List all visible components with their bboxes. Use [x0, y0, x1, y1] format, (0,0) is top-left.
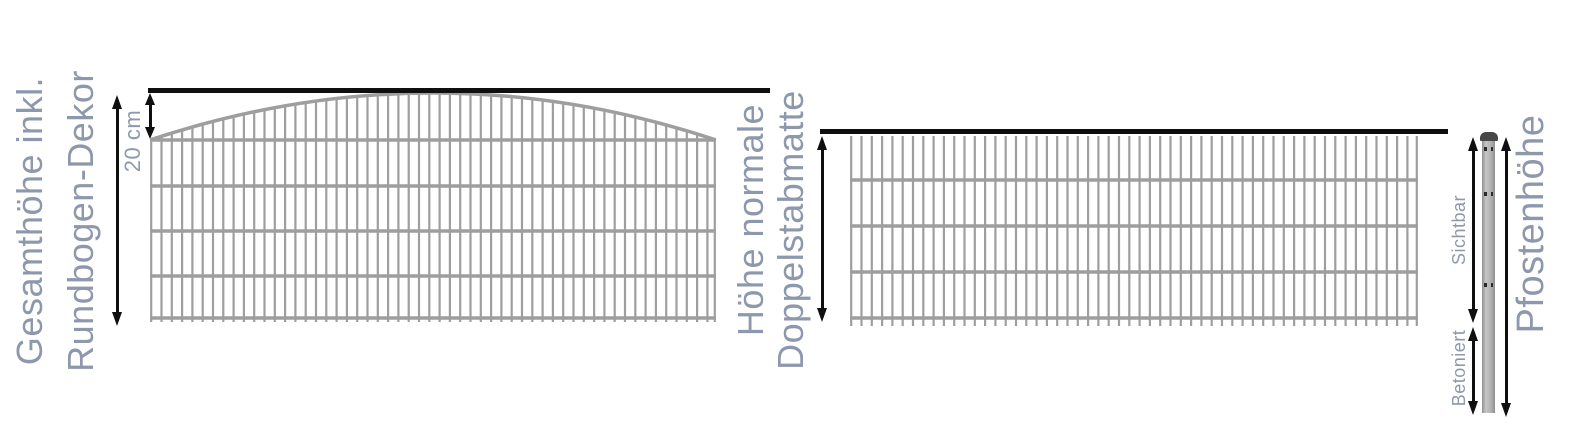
post-clip — [1484, 147, 1493, 151]
post-height-label: Pfostenhöhe — [1512, 115, 1550, 334]
total-height-label-line2: Rundbogen-Dekor — [63, 70, 99, 372]
clip-dot — [1484, 147, 1487, 151]
fence-post — [1482, 140, 1495, 413]
post-cap — [1480, 132, 1498, 141]
arrow-shaft — [1472, 332, 1475, 410]
concreted-section-label: Betoniert — [1450, 330, 1468, 407]
arched-fence-panel — [150, 93, 716, 326]
clip-dot — [1484, 283, 1487, 287]
arrow-shaft — [821, 141, 824, 317]
visible-section-arrow — [1468, 137, 1478, 323]
arrow-shaft — [1505, 142, 1508, 412]
arch-height-label: 20 cm — [122, 110, 144, 172]
clip-dot — [1491, 283, 1494, 287]
panel-height-arrow — [817, 136, 827, 322]
clip-dot — [1491, 192, 1494, 196]
total-height-label-line1: Gesamthöhe inkl. — [12, 77, 48, 365]
clip-dot — [1484, 192, 1487, 196]
clip-dot — [1491, 147, 1494, 151]
diagram-canvas: Gesamthöhe inkl. Rundbogen-Dekor 20 cm H… — [0, 0, 1587, 425]
visible-section-label: Sichtbar — [1450, 195, 1468, 265]
post-clip — [1484, 192, 1493, 196]
panel-height-label-line1: Höhe normale — [733, 104, 769, 336]
arrow-shaft — [116, 100, 119, 321]
arrow-shaft — [1472, 142, 1475, 318]
panel-height-label-line2: Doppelstabmatte — [773, 90, 809, 370]
concreted-section-arrow — [1468, 327, 1478, 415]
flat-fence-panel — [850, 134, 1418, 330]
post-clip — [1484, 283, 1493, 287]
